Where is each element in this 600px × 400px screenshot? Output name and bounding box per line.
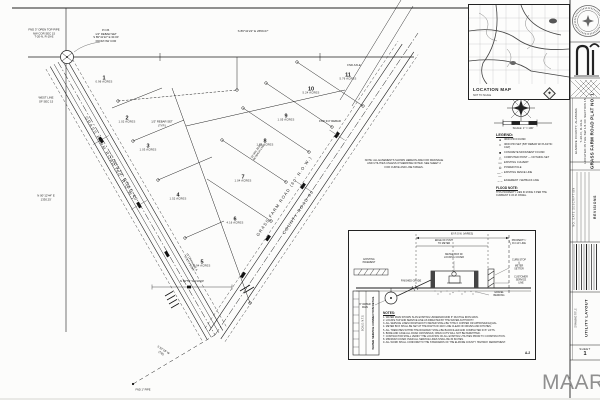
legend-item-label: IRON PIN FOUND	[504, 139, 525, 142]
survey-annotation: FND 1″ PIPE	[135, 388, 150, 391]
survey-annotation: FND 3″ OPEN TOP PIPE NW COR SEC 15 T-20-…	[28, 29, 59, 40]
revisions-heading: REVISIONS	[593, 195, 597, 219]
association-logo-icon	[543, 87, 556, 100]
location-map-image	[469, 5, 569, 84]
detail-callout: CURB STOP & METER SETTER	[511, 259, 527, 271]
legend-symbol-icon: ▭	[496, 162, 504, 165]
legend-item-label: EASEMENT / SETBACK LINE	[504, 180, 539, 183]
detail-ref: A-2	[525, 351, 530, 355]
section-corner-monument	[61, 42, 101, 64]
survey-annotation: N 00°12′44″ E 1330.25′	[37, 194, 54, 201]
detail-callout: CUSTOMER SERVICE LINE	[514, 277, 528, 286]
lot-label: 6 4.16 ACRES	[226, 216, 243, 225]
legend-item-label: POWER POLE	[504, 167, 521, 170]
flood-note-text: THIS PROPERTY LIES IN ZONE X PER THE CUR…	[496, 191, 558, 197]
lot-label: 7 1.04 ACRES	[234, 174, 251, 183]
detail-callout: EXISTING PAVEMENT	[363, 259, 376, 265]
legend-item: △ COMPUTED POINT — NOTHING SET	[496, 157, 558, 160]
plat-sheet: LOCATION MAP NOT TO SCALE SCALE: 1″ = 10…	[0, 0, 600, 400]
detail-note-line: 9. ALL WORK SHALL CONFORM TO THE STANDAR…	[383, 341, 519, 344]
survey-annotation: P.O.B. 1/2″ REBAR SET S 89°41′22″ E 30.0…	[93, 29, 119, 44]
legend-symbol-icon: □	[496, 144, 504, 147]
surveyor-seal	[573, 6, 600, 37]
location-map-label: LOCATION MAP	[473, 87, 511, 92]
legend-item: ● IRON PIN FOUND	[496, 139, 558, 142]
legend-symbol-icon: —··—	[496, 172, 504, 179]
legend-symbol-icon: △	[496, 157, 504, 160]
crosshatch-band	[570, 80, 600, 97]
legend-items: ● IRON PIN FOUND □ IRON PIN SET (5/8″ RE…	[496, 139, 558, 183]
legend: LEGEND: ● IRON PIN FOUND □ IRON PIN SET …	[496, 133, 558, 197]
legend-item: ▭ EXISTING CULVERT	[496, 162, 558, 165]
legend-item: ⊙ POWER POLE	[496, 167, 558, 170]
revisions-columns: NO. DATE DESCRIPTION	[572, 187, 575, 226]
lot-acreage: 5.24 ACRES	[302, 93, 319, 96]
location-map: LOCATION MAP NOT TO SCALE	[468, 4, 570, 100]
lot-label: 9 1.05 ACRES	[277, 113, 294, 122]
firm-info-block	[574, 244, 597, 290]
lot-acreage: 1.02 ACRES	[118, 122, 135, 125]
detail-callout: GRAVEL BEDDING	[494, 292, 505, 298]
mls-watermark: MAAR/MLS	[542, 371, 600, 395]
legend-symbol-icon: ⊙	[496, 167, 504, 170]
survey-annotation: FND AXLE	[347, 64, 361, 68]
project-location-3: ELMORE COUNTY, ALABAMA	[574, 108, 578, 154]
detail-notes-heading: NOTES:	[383, 311, 395, 315]
survey-annotation: N 89°55′ W 210.00′	[180, 280, 204, 284]
detail-notes: 1. WATER MAIN SHOWN IS AN EXISTING UNDER…	[383, 316, 519, 344]
project-location-2: T-20-N, R-19-E	[579, 119, 583, 142]
lot-label: 3 1.03 ACRES	[139, 143, 156, 152]
legend-symbol-icon: – –	[496, 180, 504, 183]
water-service-detail-panel: 60′ R.O.W. (VARIES)EDGE OF PVMT TO METER…	[348, 230, 536, 360]
scale-caption: SCALE: 1″ = 100′	[492, 127, 554, 130]
lot-label: 10 5.24 ACRES	[302, 86, 319, 95]
lot-acreage: 1.03 ACRES	[139, 150, 156, 153]
lot-label: 2 1.02 ACRES	[118, 115, 135, 124]
drawing-title: UTILITY LAYOUT	[584, 299, 589, 337]
detail-side-sub: SCALE: N.T.S.	[361, 315, 364, 331]
lot-acreage: 4.16 ACRES	[226, 223, 243, 226]
legend-item-label: EXISTING CULVERT	[504, 162, 529, 165]
lot-acreage: 5.76 ACRES	[339, 79, 356, 82]
detail-side-title: WATER SERVICE CONNECTION DETAIL	[371, 296, 375, 349]
lot-label: 1 0.96 ACRES	[95, 75, 112, 84]
lot-acreage: 1.04 ACRES	[234, 181, 251, 184]
legend-item: —··— EXISTING FENCE LINE	[496, 172, 558, 179]
detail-callout: PROPERTY / R.O.W. LINE	[512, 240, 526, 246]
revisions-rules	[577, 172, 589, 242]
project-location-1: LOCATED IN THE SW 1/4 OF SECTION 15	[583, 98, 587, 164]
lot-label: 11 5.76 ACRES	[339, 72, 356, 81]
survey-annotation: 1/2″ REBAR SET (TYP.)	[151, 120, 173, 127]
legend-item: – – EASEMENT / SETBACK LINE	[496, 180, 558, 183]
survey-annotation: S 89°41′22″ E 2659.07′	[238, 30, 269, 34]
legend-item: □ IRON PIN SET (5/8″ REBAR W/ PLASTIC CA…	[496, 144, 558, 150]
lot-acreage: 0.96 ACRES	[95, 82, 112, 85]
legend-symbol-icon: ●	[496, 139, 504, 142]
flood-note-heading: FLOOD NOTE:	[496, 186, 558, 190]
lot-acreage: 1.52 ACRES	[169, 199, 186, 202]
detail-callout: EDGE OF PVMT TO METER	[435, 240, 453, 246]
tie-line	[152, 285, 232, 290]
firm-logo	[574, 44, 599, 76]
legend-item-label: IRON PIN SET (5/8″ REBAR W/ PLASTIC CAP)	[504, 144, 558, 150]
detail-callout: 60′ R.O.W. (VARIES)	[451, 234, 473, 237]
lot-acreage: 1.05 ACRES	[277, 120, 294, 123]
detail-callout: METER BOX W/ LOCKING COVER	[444, 254, 464, 260]
legend-item-label: EXISTING FENCE LINE	[504, 172, 532, 175]
detail-callout: FINISHED GRADE	[401, 281, 421, 284]
legend-item-label: CONCRETE MONUMENT FOUND	[504, 152, 544, 155]
detail-callout: 6″ WATER MAIN	[359, 304, 370, 310]
legend-heading: LEGEND:	[496, 133, 558, 137]
legend-symbol-icon: ■	[496, 152, 504, 155]
legend-item: ■ CONCRETE MONUMENT FOUND	[496, 152, 558, 155]
project-title: GRASS FARM ROAD PLAT NO. 1	[590, 93, 595, 169]
location-map-sublabel: NOT TO SCALE	[473, 94, 491, 97]
survey-annotation: WEST LINE OF SEC 15	[38, 96, 53, 103]
survey-annotation: NOTE: ALL EASEMENTS SHOWN HEREON ARE FOR…	[365, 159, 444, 169]
lot-label: 4 1.52 ACRES	[169, 192, 186, 201]
legend-item-label: COMPUTED POINT — NOTHING SET	[504, 157, 549, 160]
survey-annotation: FND 3/4″ REBAR	[319, 120, 341, 124]
scale-bar	[494, 120, 552, 127]
sheet-number: 1	[570, 351, 600, 357]
drawing-title-label: DRAWING TITLE	[575, 308, 578, 327]
